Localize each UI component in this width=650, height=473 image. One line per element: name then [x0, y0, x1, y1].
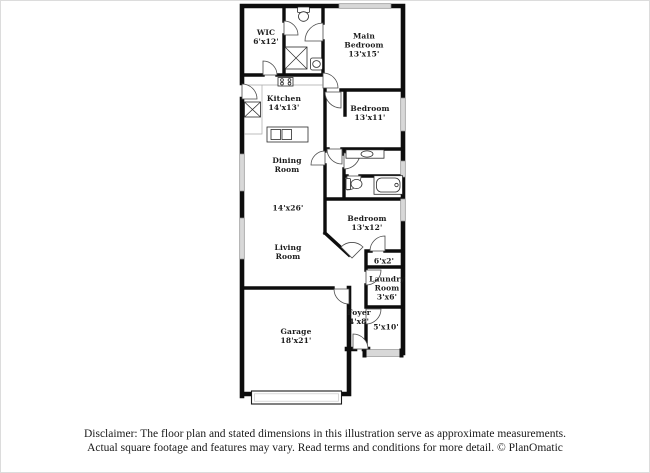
disclaimer-line1: Disclaimer: The floor plan and stated di…: [1, 427, 649, 441]
porch-door-arc: [366, 309, 381, 324]
porch-edge-cap-right: [400, 349, 404, 358]
floor-plan-drawing: [1, 1, 650, 473]
side-door-arc: [242, 84, 257, 99]
window-bedroom3: [401, 199, 406, 221]
toilet2-icon: [346, 179, 362, 190]
stove-icon: [278, 78, 293, 87]
closet-door-arc: [370, 236, 385, 251]
kitchen-island: [267, 127, 308, 142]
porch-edge-cap-left: [363, 349, 367, 358]
disclaimer-text: Disclaimer: The floor plan and stated di…: [1, 427, 649, 456]
vanity-sink-icon: [346, 150, 384, 158]
shower-icon: [285, 47, 307, 69]
hall-door-arc2: [327, 149, 342, 164]
hall-door-arc: [311, 151, 325, 165]
disclaimer-line2: Actual square footage and features may v…: [1, 441, 649, 455]
garage-door: [252, 391, 342, 404]
kitchen-hall-door-arc: [263, 61, 277, 75]
wic-door-arc: [284, 21, 298, 35]
fridge-icon: [245, 102, 261, 117]
bedroom3-door-arc: [341, 242, 363, 258]
floor-plan-page: WIC 6'x12' Main Bedroom 13'x15' Kitchen …: [0, 0, 650, 473]
bedroom2-door-arc: [325, 92, 341, 108]
laundry-door-arc: [366, 270, 381, 285]
window-living: [240, 218, 245, 259]
toilet-icon: [298, 7, 310, 21]
window-bath: [401, 161, 406, 177]
living-door-arc: [334, 289, 349, 304]
window-bedroom2: [401, 98, 406, 131]
window-dining: [240, 154, 245, 191]
main-bedroom-door-arc: [323, 73, 338, 88]
window-main-bedroom: [339, 4, 391, 9]
sink-icon: [311, 58, 323, 70]
porch-edge: [365, 350, 400, 357]
main-bath-door-arc: [305, 23, 323, 41]
bathtub-icon: [374, 176, 403, 195]
